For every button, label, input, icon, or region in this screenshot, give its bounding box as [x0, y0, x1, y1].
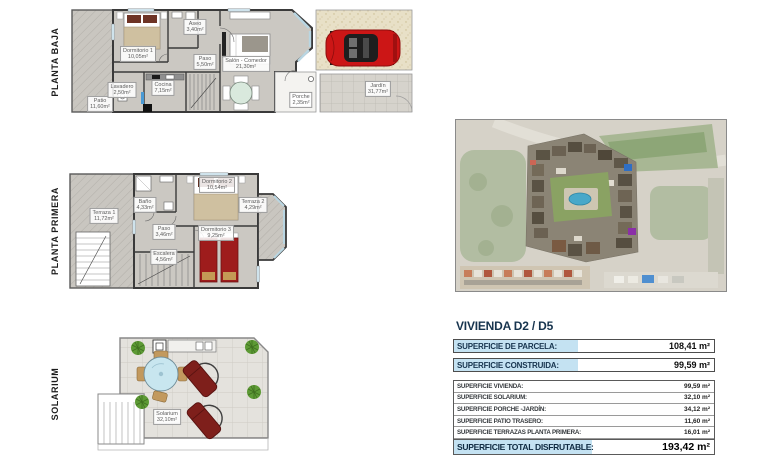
room-label-dormitorio-3: Dormitorio 39,25m²	[198, 225, 234, 241]
room-label-terraza-2: Terraza 24,29m²	[239, 197, 268, 213]
row-value: 32,10 m²	[684, 394, 714, 401]
construida-value: 99,59 m²	[578, 359, 714, 371]
row-value: 11,60 m²	[684, 418, 714, 425]
row-value: 16,01 m²	[684, 429, 714, 436]
plan-sheet-page: PLANTA BAJA	[0, 0, 770, 460]
room-label-escalera: Escalera4,56m²	[150, 249, 177, 265]
map-housing-strip	[460, 266, 590, 289]
room-label-dormitorio-1: Dormitorio 110,05m²	[120, 46, 156, 62]
construida-label: SUPERFICIE CONSTRUIDA:	[454, 359, 578, 371]
map-pool	[569, 193, 591, 205]
planta-primera-floorplan	[68, 168, 294, 294]
map-blue-marker	[624, 164, 632, 171]
room-label-salon-comedor: Salón - Comedor21,30m²	[222, 56, 270, 72]
aerial-site-map-image	[456, 120, 726, 291]
room-label-paso-pp: Paso3,46m²	[152, 224, 175, 240]
room-label-paso-pb: Paso5,50m²	[193, 54, 216, 70]
row-label: SUPERFICIE SOLARIUM:	[454, 394, 684, 401]
room-label-dormitorio-2: Dormitorio 210,54m²	[199, 177, 235, 193]
row-value: 34,12 m²	[684, 406, 714, 413]
solarium-floorplan	[68, 332, 284, 456]
row-value: 99,59 m²	[684, 383, 714, 390]
table-row: SUPERFICIE PATIO TRASERO: 11,60 m²	[454, 416, 714, 428]
red-car	[326, 30, 400, 66]
row-label: SUPERFICIE TERRAZAS PLANTA PRIMERA:	[454, 429, 684, 436]
room-label-lavadero: Lavadero2,50m²	[108, 82, 137, 98]
map-parking-strip	[604, 272, 718, 288]
total-label: SUPERFICIE TOTAL DISFRUTABLE:	[454, 440, 592, 454]
pp-exterior-stairs	[76, 232, 110, 286]
row-superficie-construida: SUPERFICIE CONSTRUIDA: 99,59 m²	[453, 358, 715, 372]
row-label: SUPERFICIE VIVIENDA:	[454, 383, 684, 390]
parcela-value: 108,41 m²	[578, 340, 714, 352]
room-label-solarium: Solarium32,10m²	[153, 409, 181, 425]
room-label-patio: Patio11,60m²	[87, 96, 113, 112]
parcela-label: SUPERFICIE DE PARCELA:	[454, 340, 578, 352]
row-total-disfrutable: SUPERFICIE TOTAL DISFRUTABLE: 193,42 m²	[454, 439, 714, 454]
sheet-title: VIVIENDA D2 / D5	[456, 319, 553, 333]
room-label-porche: Porche2,35m²	[289, 92, 312, 108]
table-row: SUPERFICIE VIVIENDA: 99,59 m²	[454, 381, 714, 393]
table-row: SUPERFICIE TERRAZAS PLANTA PRIMERA: 16,0…	[454, 427, 714, 439]
total-value: 193,42 m²	[592, 440, 714, 454]
pb-double-bed	[117, 12, 167, 49]
row-label: SUPERFICIE PATIO TRASERO:	[454, 418, 684, 425]
room-label-cocina: Cocina7,15m²	[151, 80, 174, 96]
aerial-site-map	[455, 119, 727, 292]
row-superficie-parcela: SUPERFICIE DE PARCELA: 108,41 m²	[453, 339, 715, 353]
surface-detail-table: SUPERFICIE VIVIENDA: 99,59 m² SUPERFICIE…	[453, 380, 715, 455]
map-purple-marker	[628, 228, 636, 235]
row-label: SUPERFICIE PORCHE -JARDÍN:	[454, 406, 684, 413]
map-red-marker	[530, 160, 536, 165]
room-label-aseo: Aseo3,40m²	[183, 19, 206, 35]
solarium-title: SOLARIUM	[50, 339, 64, 449]
room-label-bano: Baño4,33m²	[133, 197, 156, 213]
table-row: SUPERFICIE SOLARIUM: 32,10 m²	[454, 393, 714, 405]
table-row: SUPERFICIE PORCHE -JARDÍN: 34,12 m²	[454, 404, 714, 416]
planta-baja-title: PLANTA BAJA	[50, 7, 64, 117]
planta-primera-title: PLANTA PRIMERA	[50, 176, 64, 286]
room-label-terraza-1: Terraza 111,72m²	[90, 208, 119, 224]
room-label-jardin: Jardín31,77m²	[365, 81, 391, 97]
